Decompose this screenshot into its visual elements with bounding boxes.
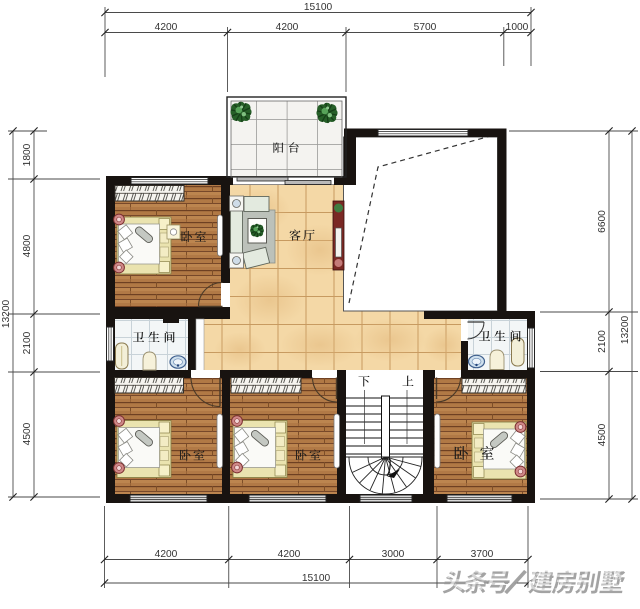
svg-text:2100: 2100 [22,331,33,354]
svg-text:15100: 15100 [302,573,331,584]
svg-text:4200: 4200 [276,22,299,33]
svg-text:13200: 13200 [1,300,12,329]
svg-text:3700: 3700 [471,549,494,560]
svg-text:13200: 13200 [620,316,631,345]
svg-text:5700: 5700 [414,22,437,33]
svg-text:4500: 4500 [22,422,33,445]
svg-text:1000: 1000 [506,22,529,33]
svg-text:1800: 1800 [22,143,33,166]
svg-text:4200: 4200 [278,549,301,560]
svg-text:15100: 15100 [304,2,333,13]
svg-text:4200: 4200 [155,549,178,560]
svg-text:2100: 2100 [597,330,608,353]
svg-text:4800: 4800 [22,234,33,257]
svg-text:4200: 4200 [155,22,178,33]
svg-text:4500: 4500 [597,423,608,446]
svg-text:3000: 3000 [382,549,405,560]
svg-text:6600: 6600 [597,210,608,233]
